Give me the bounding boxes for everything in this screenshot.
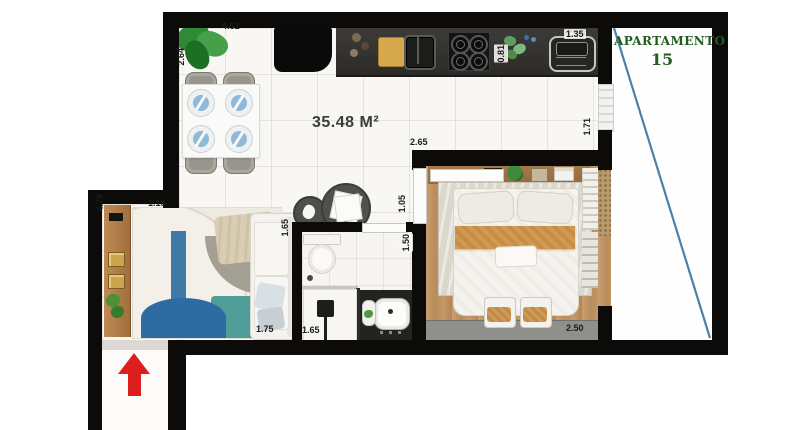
wall-bath-bedroom-shared bbox=[412, 222, 426, 345]
dim-living-top: 1.15 bbox=[148, 198, 166, 208]
dim-bedroom-hall-top: 2.65 bbox=[410, 137, 428, 147]
dim-bedroom-bottom: 2.50 bbox=[566, 323, 584, 333]
dim-counter-depth: 0.81 bbox=[494, 45, 508, 63]
dim-bathroom-door: 1.50 bbox=[399, 234, 413, 252]
wall-left-upper bbox=[163, 12, 179, 208]
wall-right bbox=[712, 12, 728, 355]
wall-bedroom-door-stub bbox=[412, 150, 426, 170]
bedroom-door-leaf bbox=[413, 168, 427, 224]
area-label: 35.48 M² bbox=[312, 114, 379, 132]
dim-shower: 1.65 bbox=[302, 325, 320, 335]
apartment-title-text: APARTAMENTO bbox=[614, 34, 710, 48]
apartment-number: 15 bbox=[614, 50, 710, 69]
wall-bedroom-top bbox=[412, 150, 602, 166]
wall-bottom bbox=[168, 340, 728, 355]
dim-hallway: 1.05 bbox=[397, 195, 407, 213]
wall-bath-top-left bbox=[292, 222, 362, 232]
dim-dining-top: 4.61 bbox=[222, 21, 240, 31]
wall-left-lower bbox=[88, 190, 102, 430]
wall-right-boundary-lower bbox=[598, 306, 612, 346]
wall-corridor bbox=[168, 340, 186, 430]
entry-arrow-icon bbox=[118, 353, 150, 396]
dim-bedroom-right: 1.71 bbox=[582, 118, 592, 136]
wall-bath-left bbox=[292, 222, 302, 345]
dim-living-left: 4.78 bbox=[95, 194, 105, 212]
dim-sofa-bottom: 1.75 bbox=[256, 324, 274, 334]
dim-dining-left: 2.64 bbox=[176, 48, 186, 66]
unit-boundary-line bbox=[612, 26, 712, 340]
floor-plan: APARTAMENTO 15 35.48 M² 4.61 2.64 1.35 0… bbox=[0, 0, 810, 430]
dim-sofa-right: 1.65 bbox=[280, 219, 290, 237]
neighbor-unit-title: APARTAMENTO 15 bbox=[614, 34, 710, 69]
dim-kitchen-sink: 1.35 bbox=[564, 29, 586, 39]
wall-right-boundary-mid bbox=[598, 130, 612, 170]
wall-right-boundary-upper bbox=[598, 26, 612, 84]
